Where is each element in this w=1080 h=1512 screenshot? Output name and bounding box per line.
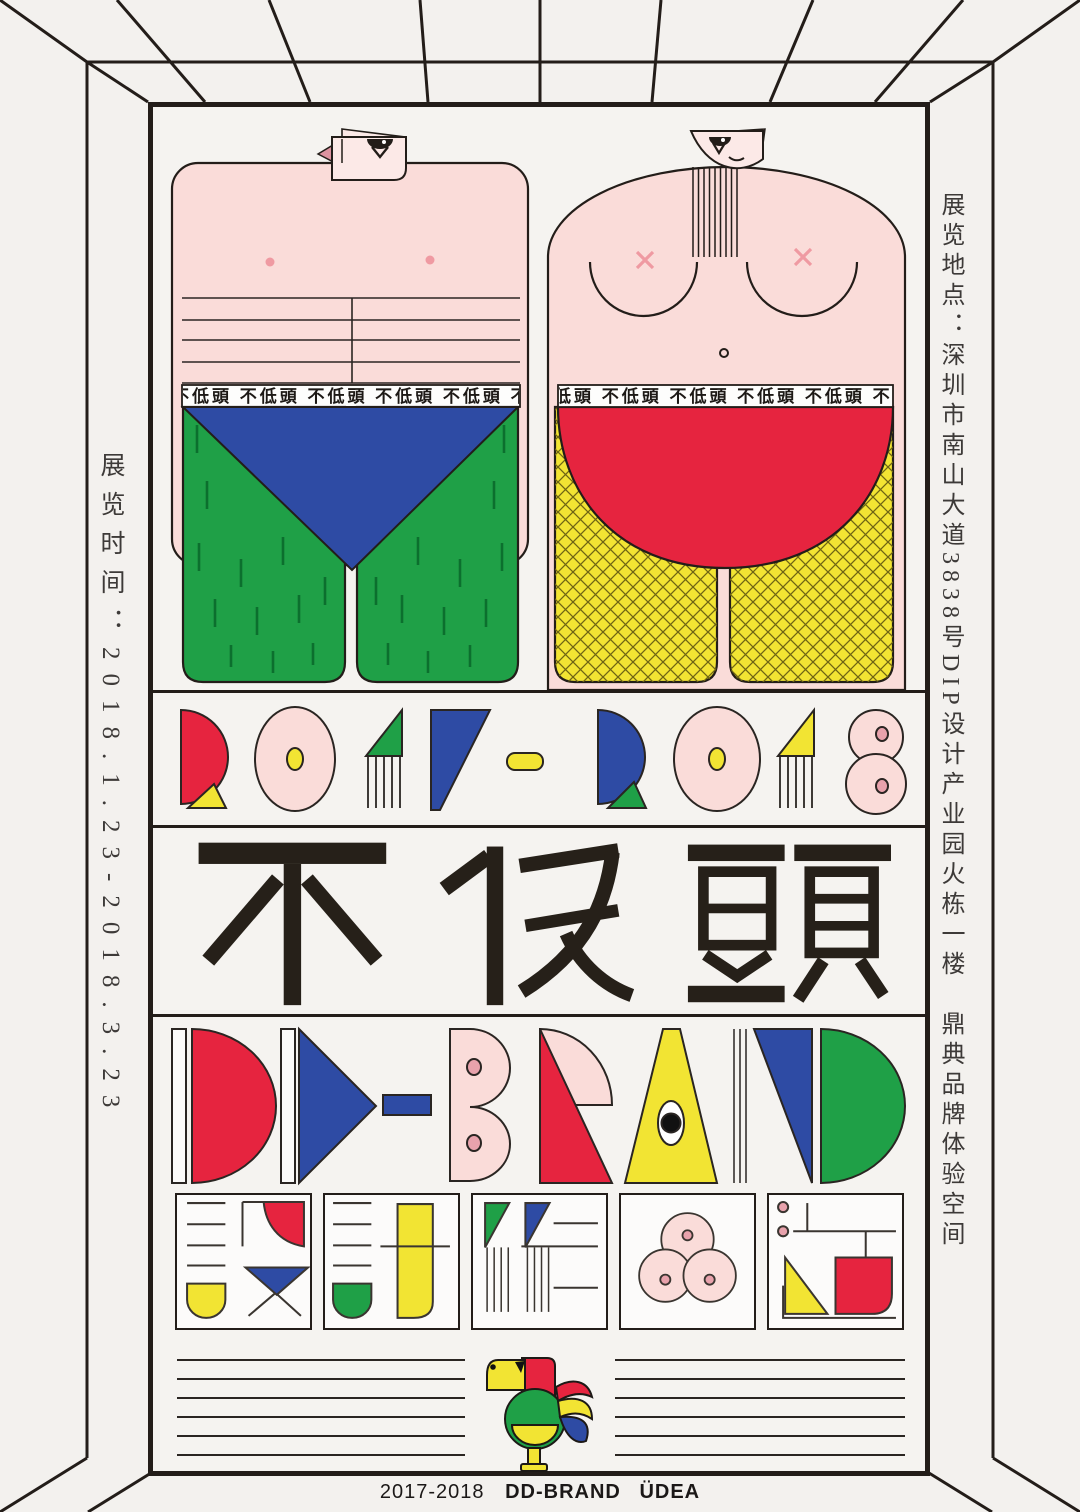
footer-brand: DD-BRAND: [505, 1481, 621, 1503]
footer-studio: ÜDEA: [639, 1481, 700, 1503]
glyph-box-5: [767, 1193, 904, 1330]
section-divider: [153, 825, 925, 828]
brand-glyphs: [168, 1023, 910, 1191]
char-tou: [688, 845, 891, 1003]
woman-bowed-head-icon: [691, 129, 765, 168]
man-waistband-text: 不低頭 不低頭 不低頭 不低頭 不低頭 不低頭 不低頭: [183, 385, 519, 407]
woman-figure: [548, 129, 905, 690]
woman-waistband-text: 不低頭 不低頭 不低頭 不低頭 不低頭 不低頭 不低頭: [559, 385, 892, 407]
exhibition-time-caption: 展览时间：2018.1.23-2018.3.23: [92, 452, 128, 1121]
rooster-icon: [487, 1358, 592, 1471]
exhibition-poster: 展览时间：2018.1.23-2018.3.23 展览地点：深圳市南山大道383…: [0, 0, 1080, 1512]
char-bu: [199, 843, 387, 1005]
section-divider: [153, 1014, 925, 1017]
glyph-box-4: [619, 1193, 756, 1330]
man-bowed-head-icon: [318, 129, 406, 180]
glyph-box-1: [175, 1193, 312, 1330]
exhibition-location-caption: 展览地点：深圳市南山大道3838号DIP设计产业园火栋一楼 鼎典品牌体验空间: [933, 192, 968, 1251]
main-title-glyphs: [168, 833, 910, 1009]
rooster-row: [153, 1351, 925, 1473]
glyph-box-3: [471, 1193, 608, 1330]
year-range-glyphs: [168, 704, 910, 816]
char-di: [444, 847, 632, 1006]
poster-panel: 不低頭 不低頭 不低頭 不低頭 不低頭 不低頭 不低頭 不低頭 不低頭 不低頭 …: [148, 102, 930, 1476]
footer-credit: 2017-2018 DD-BRAND ÜDEA: [0, 1481, 1080, 1504]
ruled-lines-right: [615, 1360, 905, 1455]
ruled-lines-left: [177, 1360, 465, 1455]
glyph-box-row: [175, 1193, 909, 1330]
footer-year: 2017-2018: [380, 1481, 485, 1503]
glyph-box-2: [323, 1193, 460, 1330]
section-divider: [153, 690, 925, 693]
